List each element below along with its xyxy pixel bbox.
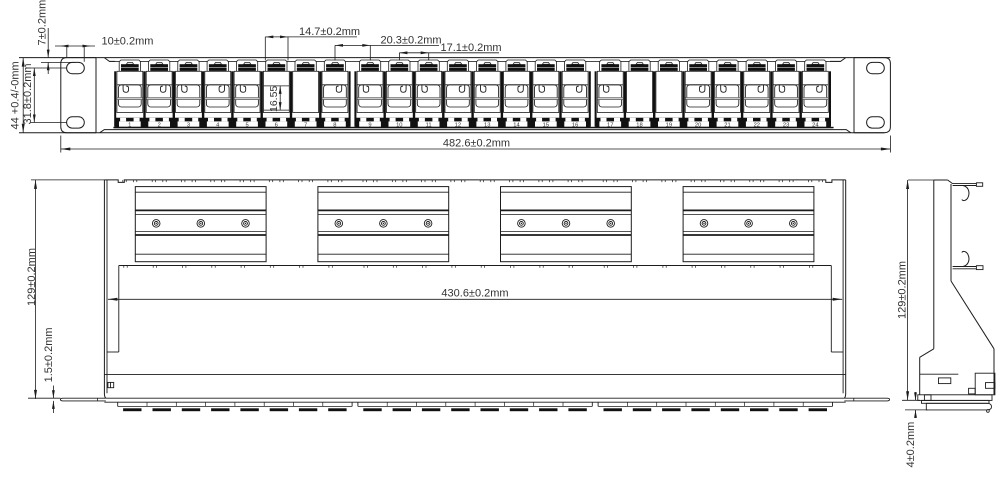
svg-text:20.3±0.2mm: 20.3±0.2mm xyxy=(381,34,442,46)
svg-text:16.55: 16.55 xyxy=(268,86,280,112)
svg-text:129±0.2mm: 129±0.2mm xyxy=(26,248,38,306)
svg-text:1.5±0.2mm: 1.5±0.2mm xyxy=(43,327,55,382)
svg-text:7±0.2mm: 7±0.2mm xyxy=(36,0,48,46)
svg-text:129±0.2mm: 129±0.2mm xyxy=(897,261,909,319)
svg-text:430.6±0.2mm: 430.6±0.2mm xyxy=(441,288,508,300)
svg-text:44 +0.4/-0mm: 44 +0.4/-0mm xyxy=(10,61,22,129)
svg-text:4±0.2mm: 4±0.2mm xyxy=(905,422,917,468)
svg-text:31.8±0.2mm: 31.8±0.2mm xyxy=(22,63,34,124)
svg-text:482.6±0.2mm: 482.6±0.2mm xyxy=(443,138,510,150)
svg-text:17.1±0.2mm: 17.1±0.2mm xyxy=(441,42,502,54)
svg-text:14.7±0.2mm: 14.7±0.2mm xyxy=(299,26,360,38)
svg-text:10±0.2mm: 10±0.2mm xyxy=(102,36,154,48)
